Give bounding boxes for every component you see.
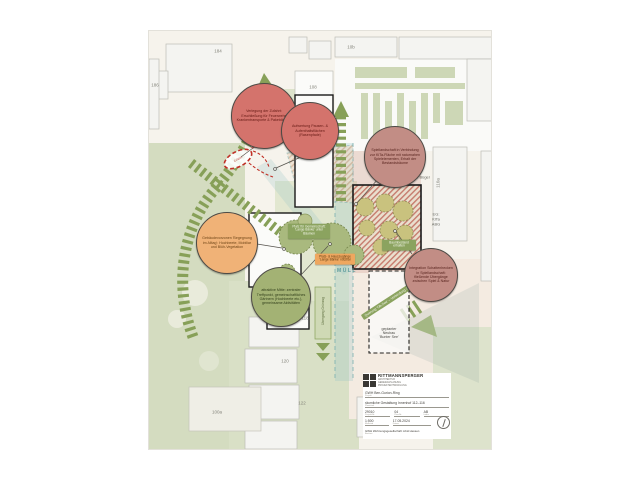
- building-label-10b: 10b: [347, 45, 355, 50]
- label-uebergang: Übergang Grünzug: [321, 297, 325, 325]
- building-label-108: 108: [309, 85, 317, 90]
- tag-gemeinschaft: Platz für Gemeinschaft: 'Lange Bänke' un…: [288, 224, 330, 239]
- field-plan-no: 04 Plan-Nr.: [394, 410, 419, 418]
- field-date: 17.05.2024 Datum: [393, 419, 431, 427]
- building-label-100a: 100a: [212, 410, 222, 415]
- label-fussweg: Fußweg: [333, 185, 337, 197]
- building-label-122: 122: [298, 401, 306, 406]
- label-muell: MÜLL: [337, 268, 357, 274]
- title-block: RITTMANNSPERGER ARCHITEKTUR GENERALPLANU…: [363, 373, 451, 439]
- label-eg-kita: EG: KiTa ABG: [432, 212, 440, 227]
- site-plan-sheet: 184 186 10b 108 110 112 114 116 118 120 …: [148, 30, 492, 450]
- field-client: GWH Wohnungsgesellschaft mbH Hessen Bauh…: [365, 428, 449, 436]
- bubble-aufwertung: Aufwertung Pausen- & Aufenthaltsflächen …: [281, 102, 339, 160]
- north-arrow-icon: [437, 416, 450, 429]
- field-title: räumliche Gestaltung Innenhof 112–116 Pl…: [365, 400, 449, 409]
- page-canvas: 184 186 10b 108 110 112 114 116 118 120 …: [0, 0, 640, 480]
- label-neubau-bunter-see: geplanter Neubau 'Bunter See': [379, 327, 398, 339]
- bubble-schattenhecken: Integration Schattenhecken in Spiellands…: [404, 248, 458, 302]
- building-label-120: 120: [281, 359, 289, 364]
- building-label-184: 184: [214, 49, 222, 54]
- field-numbers: 29010 Projekt-Nr. 04 Plan-Nr. AB Index: [365, 410, 449, 419]
- tag-eingangszone: Platz- & Hauszugänge 'Lange Bänke' nutzb…: [315, 254, 355, 265]
- field-proj-no: 29010 Projekt-Nr.: [365, 410, 390, 418]
- tag-baumbestand: Baumbestand erhalten: [382, 240, 416, 251]
- building-label-110a: 110a: [436, 178, 441, 188]
- bubble-gebaeudevorzonen: Gebäudevorzonen 'Begegnung im Alltag': H…: [196, 212, 258, 274]
- firm-disciplines: ARCHITEKTUR GENERALPLANUNG PROJEKTENTWIC…: [378, 378, 423, 387]
- field-project: GWH Ben-Gurion-Ring Projekt: [365, 390, 449, 399]
- scale-caption: Maßstab: [365, 423, 389, 425]
- building-label-186: 186: [151, 83, 159, 88]
- bubble-spiellandschaft: Spiellandschaft in Verbindung zur KiTa-F…: [364, 126, 426, 188]
- index-caption: Index: [424, 414, 449, 416]
- firm-header: RITTMANNSPERGER ARCHITEKTUR GENERALPLANU…: [363, 373, 451, 387]
- firm-logo-icon: [363, 374, 376, 387]
- project-caption: Projekt: [365, 395, 449, 397]
- bubble-attraktive-mitte: attraktive Mitte: zentraler Treffpunkt, …: [251, 267, 311, 327]
- title-caption: Planinhalt: [365, 405, 449, 407]
- proj-no-caption: Projekt-Nr.: [365, 414, 390, 416]
- field-scale: 1:500 Maßstab: [365, 419, 389, 427]
- client-caption: Bauherr: [365, 433, 449, 435]
- plan-no-caption: Plan-Nr.: [394, 414, 419, 416]
- date-caption: Datum: [393, 423, 431, 425]
